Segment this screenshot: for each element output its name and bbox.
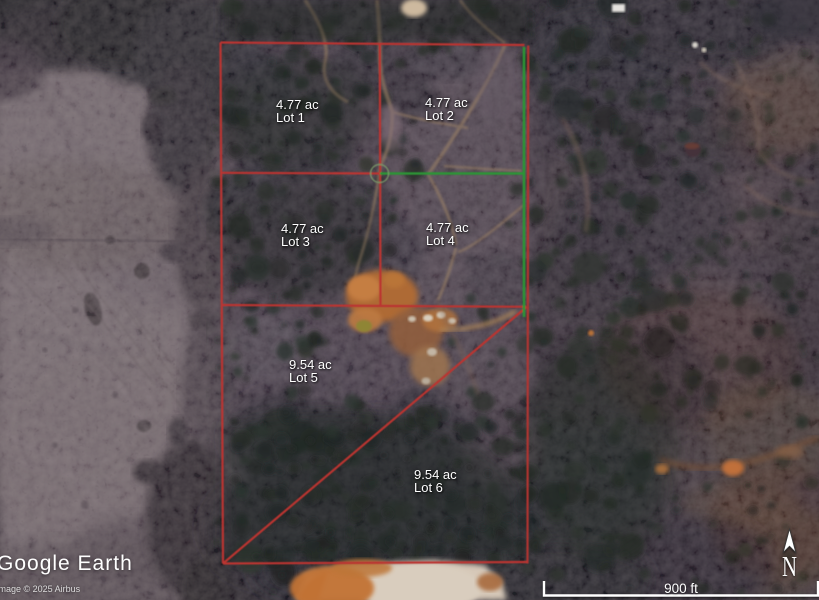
svg-text:900 ft: 900 ft [664,581,698,596]
svg-text:N: N [782,552,797,583]
